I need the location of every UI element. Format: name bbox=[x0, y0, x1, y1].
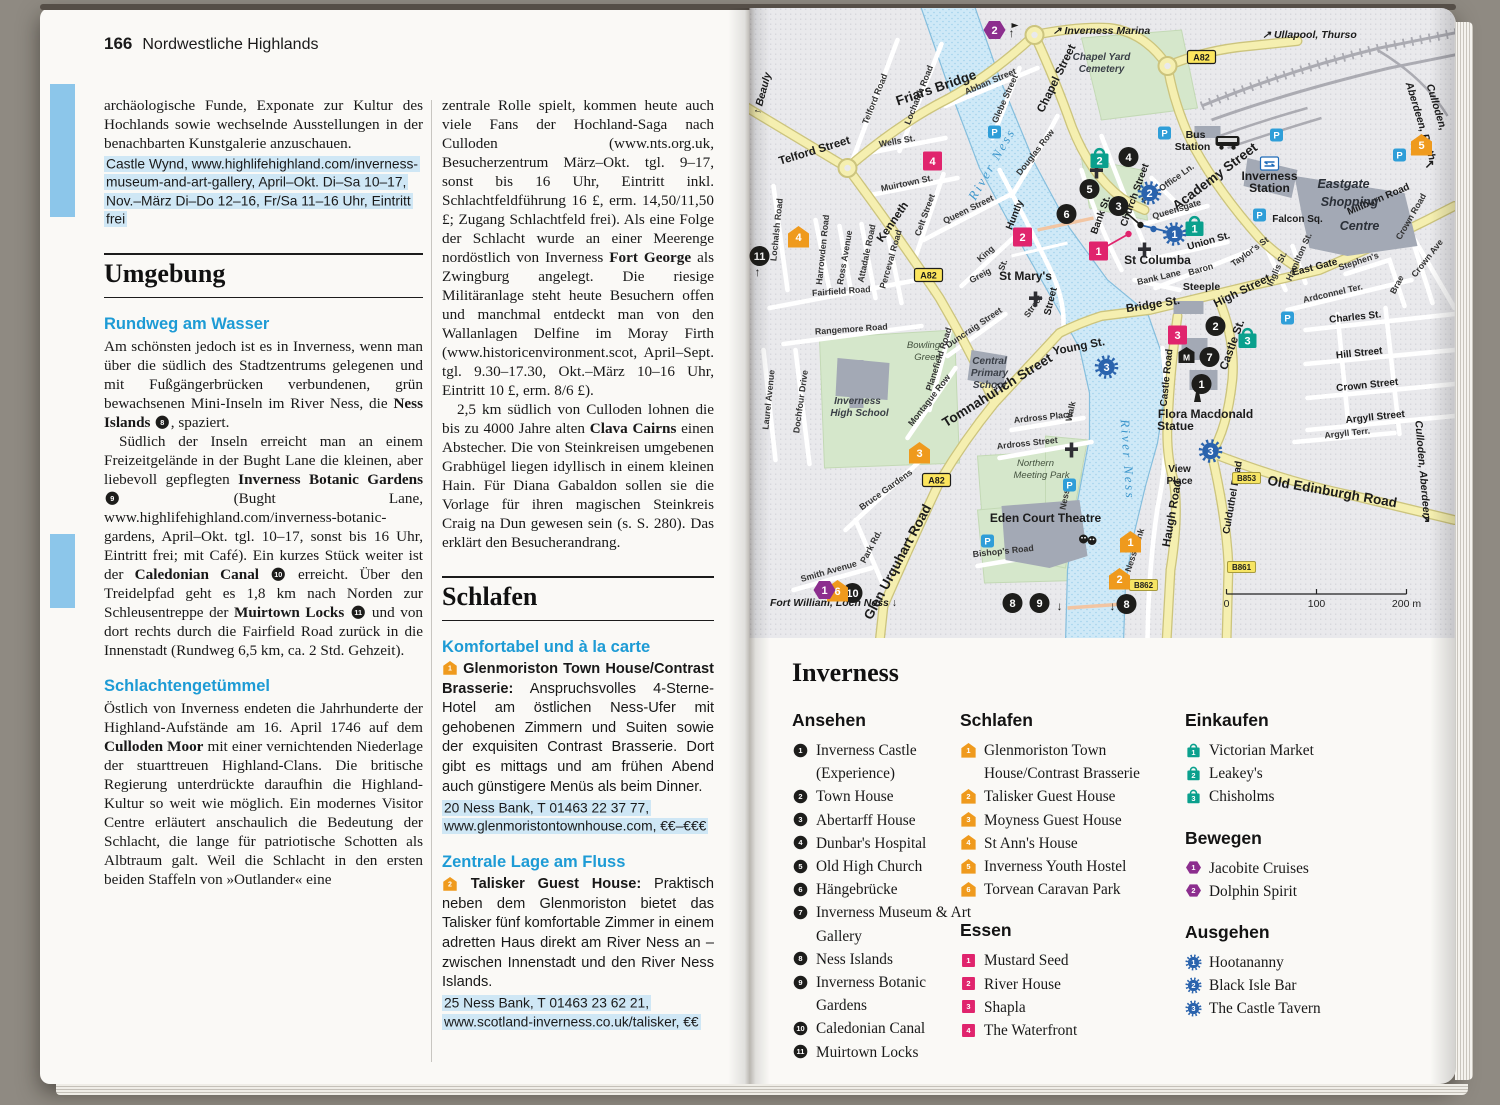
svg-text:1: 1 bbox=[1191, 863, 1195, 872]
sight-marker-icon: 3 bbox=[792, 811, 809, 828]
svg-text:11: 11 bbox=[754, 251, 766, 263]
sight-marker-icon: 2 bbox=[792, 788, 809, 805]
svg-text:B862: B862 bbox=[1134, 581, 1154, 590]
svg-text:1: 1 bbox=[1191, 958, 1195, 967]
legend-section-essen: Essen1Mustard Seed2River House3Shapla4Th… bbox=[960, 920, 1190, 1042]
legend-item-label: Jacobite Cruises bbox=[1209, 860, 1309, 877]
highlighted-info-text: 25 Ness Bank, T 01463 23 62 21, www.scot… bbox=[442, 995, 701, 1030]
svg-text:1: 1 bbox=[966, 956, 970, 965]
page-number: 166 bbox=[104, 34, 132, 53]
svg-text:2: 2 bbox=[966, 792, 970, 801]
legend-section-header: Schlafen bbox=[960, 710, 1190, 731]
svg-text:6: 6 bbox=[834, 586, 840, 598]
legend-item-label: Inverness Botanic bbox=[816, 974, 926, 991]
svg-text:M: M bbox=[1183, 353, 1190, 363]
legend-item-label: St Ann's House bbox=[984, 835, 1078, 852]
svg-text:1: 1 bbox=[1191, 747, 1195, 756]
legend-section-bewegen: Bewegen1Jacobite Cruises2Dolphin Spirit bbox=[1185, 828, 1425, 903]
parking-icon: P bbox=[1253, 209, 1266, 222]
legend-item: 2Talisker Guest House bbox=[960, 785, 1190, 808]
svg-text:6: 6 bbox=[1063, 209, 1069, 221]
map-label: Station bbox=[1175, 141, 1211, 153]
chapter-tab-bottom bbox=[50, 534, 75, 608]
hotel-marker-icon: 3 bbox=[960, 811, 977, 828]
legend-item: 3Shapla bbox=[960, 996, 1190, 1019]
svg-text:P: P bbox=[1273, 131, 1280, 142]
svg-text:3: 3 bbox=[798, 815, 802, 824]
map-legend: Inverness Ansehen1Inverness Castle(Exper… bbox=[748, 638, 1456, 1084]
svg-text:3: 3 bbox=[1191, 794, 1195, 803]
b-road-badge: B862 bbox=[1130, 580, 1158, 591]
section-heading: Schlafen bbox=[442, 576, 714, 621]
legend-item-label: Inverness Castle bbox=[816, 742, 917, 759]
sight-marker-icon: 4 bbox=[792, 834, 809, 851]
legend-section-header: Einkaufen bbox=[1185, 710, 1425, 731]
svg-text:1: 1 bbox=[1095, 246, 1101, 258]
legend-item-label: The Waterfront bbox=[984, 1022, 1077, 1039]
legend-section-ausgehen: Ausgehen1Hootananny2Black Isle Bar3The C… bbox=[1185, 922, 1425, 1021]
svg-text:1: 1 bbox=[1127, 537, 1133, 549]
map-marker-sight-2: 2 bbox=[1206, 316, 1226, 336]
map-marker-food-3: 3 bbox=[1168, 326, 1187, 345]
map-marker-food-1: 1 bbox=[1089, 242, 1108, 261]
legend-column-3: Einkaufen1Victorian Market2Leakey's3Chis… bbox=[1185, 710, 1425, 1040]
svg-text:3: 3 bbox=[966, 815, 970, 824]
svg-text:P: P bbox=[984, 537, 991, 548]
svg-text:2: 2 bbox=[448, 881, 452, 888]
map-label: Chapel Yard bbox=[1073, 52, 1132, 63]
sight-marker-icon: 1 bbox=[792, 742, 809, 759]
parking-icon: P bbox=[981, 535, 994, 548]
map-marker-sight-1: 1 bbox=[1192, 374, 1212, 394]
svg-text:4: 4 bbox=[929, 156, 936, 168]
svg-text:1: 1 bbox=[821, 585, 827, 597]
legend-item-label: Dunbar's Hospital bbox=[816, 835, 926, 852]
svg-text:A82: A82 bbox=[928, 475, 945, 485]
svg-text:6: 6 bbox=[798, 885, 802, 894]
svg-text:P: P bbox=[1161, 129, 1168, 140]
legend-title: Inverness bbox=[792, 658, 899, 688]
legend-item-label: Shapla bbox=[984, 999, 1026, 1016]
legend-item: 4St Ann's House bbox=[960, 832, 1190, 855]
legend-item: 2Leakey's bbox=[1185, 762, 1425, 785]
hotel-marker-icon: 4 bbox=[960, 834, 977, 851]
contact-info: Castle Wynd, www.highlifehighland.com/in… bbox=[104, 155, 423, 229]
map-label: ↗ Ullapool, Thurso bbox=[1262, 29, 1357, 41]
legend-item: 1Glenmoriston Town bbox=[960, 739, 1190, 762]
svg-text:A82: A82 bbox=[1193, 52, 1210, 62]
legend-item-label: Ness Islands bbox=[816, 951, 893, 968]
sight-marker-icon: 5 bbox=[792, 858, 809, 875]
a82-road-badge: A82 bbox=[1188, 51, 1216, 64]
book-spread: 166Nordwestliche Highlands archäologisch… bbox=[0, 0, 1500, 1105]
legend-item-label: Abertarff House bbox=[816, 812, 916, 829]
map-label: Shopping bbox=[1321, 195, 1379, 209]
svg-text:2: 2 bbox=[966, 979, 970, 988]
svg-text:9: 9 bbox=[798, 978, 802, 987]
map-marker-food-4: 4 bbox=[923, 152, 942, 171]
a82-road-badge: A82 bbox=[923, 474, 951, 487]
svg-text:2: 2 bbox=[991, 25, 997, 37]
open-book: 166Nordwestliche Highlands archäologisch… bbox=[40, 8, 1456, 1084]
svg-text:2: 2 bbox=[1191, 981, 1195, 990]
svg-text:5: 5 bbox=[1086, 184, 1092, 196]
svg-text:1: 1 bbox=[966, 746, 970, 755]
section-heading: Umgebung bbox=[104, 253, 423, 298]
sight-marker-icon: 8 bbox=[154, 414, 171, 431]
legend-item: 1Jacobite Cruises bbox=[1185, 857, 1425, 880]
svg-text:3: 3 bbox=[1174, 330, 1180, 342]
map-marker-sight-9: 9 bbox=[1030, 593, 1050, 613]
legend-item-label: Town House bbox=[816, 788, 894, 805]
svg-text:P: P bbox=[1396, 151, 1403, 162]
svg-text:8: 8 bbox=[160, 418, 164, 427]
sight-marker-icon: 10 bbox=[270, 566, 287, 583]
map-marker-food-2: 2 bbox=[1013, 228, 1032, 247]
paragraph: archäologische Funde, Exponate zur Kultu… bbox=[104, 96, 423, 153]
sight-marker-icon: 6 bbox=[792, 881, 809, 898]
legend-item-label: Dolphin Spirit bbox=[1209, 883, 1297, 900]
b-road-badge: B853 bbox=[1233, 473, 1261, 484]
map-label: Station bbox=[1249, 181, 1290, 195]
svg-text:11: 11 bbox=[797, 1047, 805, 1056]
svg-text:P: P bbox=[1256, 211, 1263, 222]
svg-text:1: 1 bbox=[1171, 229, 1177, 241]
blue-subheading: Rundweg am Wasser bbox=[104, 315, 423, 334]
page-left: 166Nordwestliche Highlands archäologisch… bbox=[40, 8, 748, 1084]
svg-text:11: 11 bbox=[354, 608, 362, 617]
listing-paragraph: 2 Talisker Guest House: Praktisch neben … bbox=[442, 875, 714, 993]
legend-item: 1Mustard Seed bbox=[960, 949, 1190, 972]
page-header: 166Nordwestliche Highlands bbox=[104, 34, 318, 54]
svg-text:2: 2 bbox=[798, 792, 802, 801]
map-label: Place bbox=[1166, 476, 1193, 487]
hotel-marker-icon: 1 bbox=[442, 660, 458, 676]
svg-text:2: 2 bbox=[1212, 321, 1218, 333]
legend-item-label: Black Isle Bar bbox=[1209, 977, 1297, 994]
marker-leader-dot bbox=[1137, 222, 1143, 228]
map-marker-sight-6: 6 bbox=[1057, 204, 1077, 224]
marker-leader-dot bbox=[1125, 231, 1131, 237]
sight-marker-icon: 10 bbox=[792, 1020, 809, 1037]
svg-text:8: 8 bbox=[1123, 599, 1129, 611]
legend-section-schlafen: Schlafen1Glenmoriston TownHouse/Contrast… bbox=[960, 710, 1190, 901]
direction-arrow: ↑ bbox=[1009, 26, 1015, 40]
blue-subheading: Komfortabel und à la carte bbox=[442, 638, 714, 657]
svg-text:4: 4 bbox=[795, 232, 802, 244]
svg-text:2: 2 bbox=[1116, 574, 1122, 586]
map-marker-sight-7: 7 bbox=[1200, 347, 1220, 367]
paragraph: zentrale Rolle spielt, kommen heute auch… bbox=[442, 96, 714, 400]
page-header-title: Nordwestliche Highlands bbox=[142, 36, 318, 53]
legend-item: 3Chisholms bbox=[1185, 785, 1425, 808]
map-label: High School bbox=[830, 408, 889, 419]
food-marker-icon: 3 bbox=[960, 998, 977, 1015]
blue-subheading: Zentrale Lage am Fluss bbox=[442, 853, 714, 872]
svg-text:1: 1 bbox=[1191, 224, 1197, 236]
map-marker-sight-3: 3 bbox=[1109, 196, 1129, 216]
text-column-1: archäologische Funde, Exponate zur Kultu… bbox=[104, 96, 423, 889]
parking-icon: P bbox=[1281, 312, 1294, 325]
svg-text:10: 10 bbox=[846, 588, 858, 600]
map-svg: M ↑ BeaulyTe bbox=[749, 8, 1455, 638]
svg-text:0: 0 bbox=[1224, 598, 1230, 610]
hotel-marker-icon: 6 bbox=[960, 881, 977, 898]
svg-text:3: 3 bbox=[916, 448, 922, 460]
svg-text:3: 3 bbox=[966, 1003, 970, 1012]
svg-text:3: 3 bbox=[1207, 446, 1213, 458]
svg-text:5: 5 bbox=[966, 862, 970, 871]
svg-text:3: 3 bbox=[1115, 201, 1121, 213]
page-stack-right bbox=[1455, 22, 1473, 1080]
legend-item-label: Caledonian Canal bbox=[816, 1020, 925, 1037]
hotel-marker-icon: 5 bbox=[960, 858, 977, 875]
map-marker-sight-11: 11 bbox=[750, 246, 770, 266]
hotel-marker-icon: 1 bbox=[960, 742, 977, 759]
svg-text:9: 9 bbox=[1036, 598, 1042, 610]
svg-text:1: 1 bbox=[798, 746, 802, 755]
legend-column-2: Schlafen1Glenmoriston TownHouse/Contrast… bbox=[960, 710, 1190, 1061]
paragraph: Östlich von Inverness endeten die Jahrhu… bbox=[104, 699, 423, 889]
legend-item: 3The Castle Tavern bbox=[1185, 997, 1425, 1020]
svg-text:3: 3 bbox=[1191, 1004, 1195, 1013]
chapter-tab-top bbox=[50, 84, 75, 217]
svg-text:4: 4 bbox=[1125, 152, 1132, 164]
parking-icon: P bbox=[1158, 127, 1171, 140]
marker-leader-dot bbox=[1150, 226, 1156, 232]
blue-subheading: Schlachtengetümmel bbox=[104, 677, 423, 696]
legend-item: 1Victorian Market bbox=[1185, 739, 1425, 762]
move-marker-icon: 2 bbox=[1185, 882, 1202, 899]
highlighted-info-text: 20 Ness Bank, T 01463 22 37 77, www.glen… bbox=[442, 800, 708, 835]
map-label: Cemetery bbox=[1079, 64, 1125, 75]
listing-name: Talisker Guest House: bbox=[471, 876, 641, 892]
parking-icon: P bbox=[988, 126, 1001, 139]
svg-text:6: 6 bbox=[966, 885, 970, 894]
parking-icon: P bbox=[1393, 149, 1406, 162]
svg-text:2: 2 bbox=[1019, 232, 1025, 244]
sight-marker-icon: 11 bbox=[350, 604, 367, 621]
map-marker-sight-8: 8 bbox=[1117, 594, 1137, 614]
text-column-2: zentrale Rolle spielt, kommen heute auch… bbox=[442, 96, 714, 1032]
sight-marker-icon: 8 bbox=[792, 950, 809, 967]
page-stack-bottom bbox=[56, 1084, 1468, 1095]
map-label: Bus bbox=[1186, 129, 1206, 141]
map-marker-sight-5: 5 bbox=[1080, 179, 1100, 199]
shop-marker-icon: 1 bbox=[1185, 742, 1202, 759]
legend-section-header: Bewegen bbox=[1185, 828, 1425, 849]
map-label: Falcon Sq. bbox=[1272, 214, 1323, 225]
map-label: View bbox=[1168, 464, 1191, 475]
map-label: Central bbox=[972, 356, 1007, 367]
legend-item-label: Inverness Museum & Art bbox=[816, 904, 971, 921]
svg-text:1: 1 bbox=[448, 666, 452, 673]
svg-text:2: 2 bbox=[1146, 188, 1152, 200]
shop-marker-icon: 3 bbox=[1185, 788, 1202, 805]
map-label: St Columba bbox=[1124, 253, 1191, 267]
legend-section-header: Ausgehen bbox=[1185, 922, 1425, 943]
legend-section-header: Essen bbox=[960, 920, 1190, 941]
food-marker-icon: 1 bbox=[960, 952, 977, 969]
b-road-badge: B861 bbox=[1228, 562, 1256, 573]
food-marker-icon: 2 bbox=[960, 975, 977, 992]
svg-text:2: 2 bbox=[1096, 156, 1102, 168]
paragraph: 2,5 km südlich von Culloden lohnen die b… bbox=[442, 400, 714, 552]
map-label: St Mary's bbox=[999, 269, 1052, 283]
map-label: Meeting Park bbox=[1014, 470, 1071, 481]
contact-info: 25 Ness Bank, T 01463 23 62 21, www.scot… bbox=[442, 995, 714, 1032]
svg-text:3: 3 bbox=[1244, 336, 1250, 348]
direction-arrow: ↑ bbox=[755, 265, 761, 279]
svg-text:B853: B853 bbox=[1237, 474, 1257, 483]
svg-text:2: 2 bbox=[1191, 771, 1195, 780]
legend-section-einkaufen: Einkaufen1Victorian Market2Leakey's3Chis… bbox=[1185, 710, 1425, 809]
direction-arrow: ↓ bbox=[1057, 599, 1063, 613]
map-label: ↗ Inverness Marina bbox=[1053, 25, 1151, 37]
legend-item: 2River House bbox=[960, 973, 1190, 996]
legend-item: 1Hootananny bbox=[1185, 951, 1425, 974]
map-label: Northern bbox=[1017, 458, 1054, 469]
legend-item: 2Black Isle Bar bbox=[1185, 974, 1425, 997]
legend-item-label: Chisholms bbox=[1209, 788, 1274, 805]
legend-item-label: Hootananny bbox=[1209, 954, 1284, 971]
svg-text:B861: B861 bbox=[1232, 563, 1252, 572]
sight-marker-icon: 11 bbox=[792, 1043, 809, 1060]
legend-item-label: Muirtown Locks bbox=[816, 1044, 918, 1061]
legend-item-label: The Castle Tavern bbox=[1209, 1000, 1321, 1017]
a82-road-badge: A82 bbox=[915, 269, 943, 282]
legend-item-label: Talisker Guest House bbox=[984, 788, 1115, 805]
legend-item-label: Mustard Seed bbox=[984, 952, 1069, 969]
svg-text:7: 7 bbox=[1206, 352, 1212, 364]
sight-marker-icon: 9 bbox=[104, 490, 121, 507]
legend-item-label: River House bbox=[984, 976, 1061, 993]
svg-text:8: 8 bbox=[798, 955, 802, 964]
svg-text:100: 100 bbox=[1308, 598, 1326, 610]
legend-item-label: Glenmoriston Town bbox=[984, 742, 1106, 759]
night-marker-icon: 3 bbox=[1185, 1000, 1202, 1017]
night-marker-icon: 1 bbox=[1185, 954, 1202, 971]
paragraph: Südlich der Inseln erreicht man an einem… bbox=[104, 432, 423, 660]
contact-info: 20 Ness Bank, T 01463 22 37 77, www.glen… bbox=[442, 799, 714, 836]
svg-text:P: P bbox=[991, 128, 998, 139]
listing-name: Glenmoriston Town House/Contrast Brasser… bbox=[442, 661, 714, 697]
svg-text:5: 5 bbox=[1418, 140, 1424, 152]
svg-text:P: P bbox=[1284, 314, 1291, 325]
svg-text:7: 7 bbox=[798, 908, 802, 917]
parking-icon: P bbox=[1063, 479, 1076, 492]
legend-item: 3Moyness Guest House bbox=[960, 809, 1190, 832]
svg-text:9: 9 bbox=[110, 494, 114, 503]
legend-item: 2Dolphin Spirit bbox=[1185, 880, 1425, 903]
map-label: Eastgate bbox=[1317, 177, 1369, 191]
food-marker-icon: 4 bbox=[960, 1022, 977, 1039]
svg-text:2: 2 bbox=[1191, 887, 1195, 896]
svg-text:10: 10 bbox=[796, 1024, 804, 1033]
svg-text:5: 5 bbox=[798, 862, 802, 871]
map-marker-sight-8: 8 bbox=[1003, 593, 1023, 613]
hotel-marker-icon: 2 bbox=[442, 876, 458, 892]
column-divider bbox=[431, 100, 432, 1062]
svg-text:A82: A82 bbox=[920, 270, 937, 280]
legend-item: 5Inverness Youth Hostel bbox=[960, 855, 1190, 878]
map-marker-sight-4: 4 bbox=[1119, 147, 1139, 167]
svg-text:200 m: 200 m bbox=[1392, 598, 1421, 610]
legend-item-label: Old High Church bbox=[816, 858, 922, 875]
map-label: Centre bbox=[1340, 219, 1380, 233]
svg-text:P: P bbox=[1066, 481, 1073, 492]
page-right: M ↑ BeaulyTe bbox=[748, 8, 1456, 1084]
sight-marker-icon: 7 bbox=[792, 904, 809, 921]
hotel-marker-icon: 2 bbox=[960, 788, 977, 805]
parking-icon: P bbox=[1270, 129, 1283, 142]
legend-item: 6Torvean Caravan Park bbox=[960, 878, 1190, 901]
legend-item-label: Victorian Market bbox=[1209, 742, 1314, 759]
legend-item: 4The Waterfront bbox=[960, 1019, 1190, 1042]
legend-item-label: Torvean Caravan Park bbox=[984, 881, 1121, 898]
map-label: Steeple bbox=[1183, 281, 1221, 293]
svg-text:10: 10 bbox=[274, 570, 282, 579]
paragraph: Am schönsten jedoch ist es in Inverness,… bbox=[104, 337, 423, 432]
legend-item-label: Hängebrücke bbox=[816, 881, 898, 898]
direction-arrow: ↗ bbox=[1424, 157, 1434, 171]
direction-arrow: ↓ bbox=[1110, 599, 1116, 613]
svg-text:1: 1 bbox=[1198, 379, 1204, 391]
map-label: Eden Court Theatre bbox=[990, 511, 1102, 525]
highlighted-info-text: Castle Wynd, www.highlifehighland.com/in… bbox=[104, 156, 420, 228]
inverness-city-map: M ↑ BeaulyTe bbox=[749, 8, 1455, 638]
shop-marker-icon: 2 bbox=[1185, 765, 1202, 782]
svg-text:3: 3 bbox=[1103, 362, 1109, 374]
legend-item-label: Inverness Youth Hostel bbox=[984, 858, 1126, 875]
sight-marker-icon: 9 bbox=[792, 974, 809, 991]
listing-paragraph: 1 Glenmoriston Town House/Contrast Brass… bbox=[442, 660, 714, 797]
svg-text:8: 8 bbox=[1009, 598, 1015, 610]
legend-item-label: Leakey's bbox=[1209, 765, 1263, 782]
move-marker-icon: 1 bbox=[1185, 859, 1202, 876]
legend-item-continuation: House/Contrast Brasserie bbox=[960, 762, 1190, 785]
legend-item-label: Moyness Guest House bbox=[984, 812, 1122, 829]
map-label: Statue bbox=[1157, 419, 1194, 433]
map-label: Inverness bbox=[834, 396, 881, 407]
direction-arrow: ↘ bbox=[1420, 511, 1430, 525]
night-marker-icon: 2 bbox=[1185, 977, 1202, 994]
